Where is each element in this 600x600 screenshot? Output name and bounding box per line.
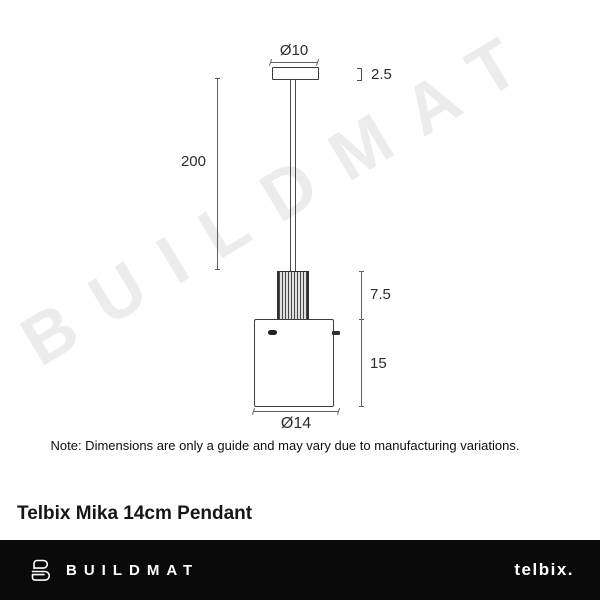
dim-tick: [316, 59, 319, 66]
dim-line-canopy-diameter: [271, 62, 317, 63]
dim-label-shade-diameter: Ø14: [266, 416, 326, 431]
dim-label-canopy-height: 2.5: [371, 67, 392, 82]
dim-tick: [269, 59, 272, 66]
dim-tick: [359, 319, 364, 320]
dim-label-neck-height: 7.5: [370, 287, 391, 302]
product-dimension-image: BUILDMAT Ø10 2.5 200: [0, 0, 600, 600]
dim-bracket-canopy-height: [357, 68, 362, 81]
buildmat-wordmark: BUILDMAT: [66, 562, 199, 579]
dim-tick: [252, 408, 255, 415]
side-pin-detail: [332, 331, 340, 335]
screw-detail: [268, 330, 277, 335]
fluted-neck: [277, 271, 309, 319]
dim-label-cord-length: 200: [172, 154, 206, 169]
telbix-logo: telbix.: [514, 560, 574, 580]
dim-label-shade-height: 15: [370, 356, 387, 371]
dim-line-heights: [361, 271, 362, 407]
product-title: Telbix Mika 14cm Pendant: [17, 503, 252, 525]
dim-tick: [359, 271, 364, 272]
suspension-cord: [290, 79, 296, 272]
dim-tick: [359, 406, 364, 407]
dimensions-note: Note: Dimensions are only a guide and ma…: [0, 438, 570, 453]
dim-line-shade-diameter: [254, 411, 338, 412]
buildmat-logo-icon: [30, 559, 56, 582]
buildmat-logo: BUILDMAT: [30, 559, 199, 582]
dim-tick: [215, 269, 220, 270]
footer-bar: BUILDMAT telbix.: [0, 540, 600, 600]
dim-line-cord-length: [217, 78, 218, 270]
glass-shade: [254, 319, 334, 407]
dim-tick: [337, 408, 340, 415]
dim-label-canopy-diameter: Ø10: [264, 43, 324, 58]
dim-tick: [215, 78, 220, 79]
